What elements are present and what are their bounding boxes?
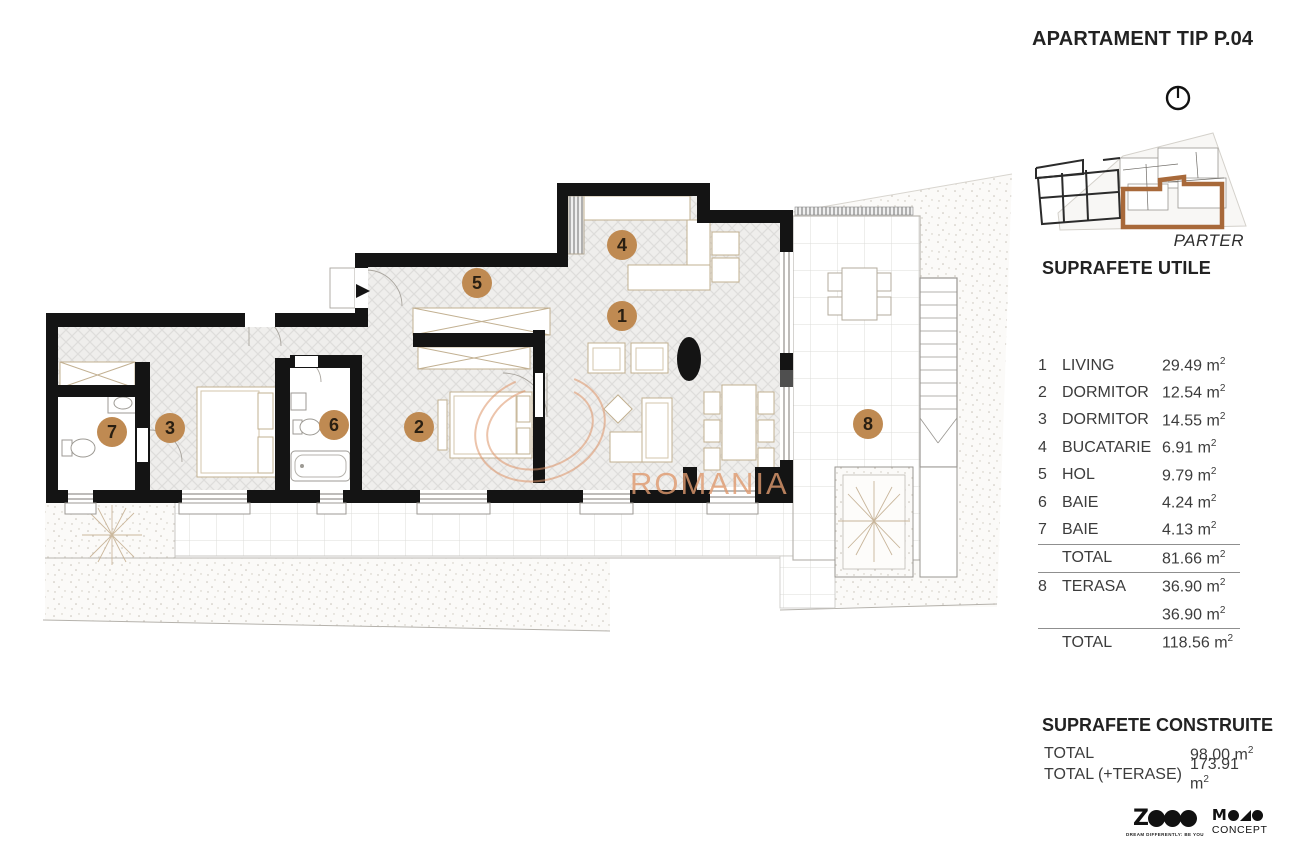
area-row: 8TERASA36.90 m2 [1038,573,1240,600]
page-title: APARTAMENT TIP P.04 [1032,28,1253,51]
room-area: 36.90 m2 [1162,577,1240,596]
footer-logos: Z DREAM DIFFERENTLY: BE YOU M CONCEPT [1126,806,1266,837]
room-area: 118.56 m2 [1162,633,1240,652]
floorplan-drawing: 12345678 ROMANIA [0,0,1020,866]
room-area: 9.79 m2 [1162,466,1240,485]
room-number: 7 [1038,521,1062,539]
mono-triangle-glyph [1240,810,1251,821]
room-area: 4.13 m2 [1162,520,1240,539]
room-number: 8 [1038,578,1062,596]
zece-tagline: DREAM DIFFERENTLY: BE YOU [1126,832,1204,837]
room-marker-3: 3 [155,413,185,443]
built-label: TOTAL [1044,745,1190,763]
room-label: TOTAL [1062,634,1162,652]
room-marker-8: 8 [853,409,883,439]
floorplan-page: { "header": { "title": "APARTAMENT TIP P… [0,0,1291,866]
room-label: BAIE [1062,494,1162,512]
mono-m-glyph: M [1212,806,1227,824]
zece-logo: Z DREAM DIFFERENTLY: BE YOU [1126,806,1204,837]
room-area: 6.91 m2 [1162,438,1240,457]
keyplan-diagram [1028,118,1252,240]
area-row: 2DORMITOR12.54 m2 [1038,379,1240,406]
room-label: DORMITOR [1062,384,1162,402]
room-number: 6 [1038,494,1062,512]
room-number: 2 [1038,384,1062,402]
room-marker-4: 4 [607,230,637,260]
areas-table: 1LIVING29.49 m22DORMITOR12.54 m23DORMITO… [1038,352,1240,656]
room-label: BAIE [1062,521,1162,539]
room-area: 36.90 m2 [1162,605,1240,624]
room-number: 3 [1038,411,1062,429]
area-row: TOTAL81.66 m2 [1038,544,1240,573]
zece-disc [1164,810,1181,827]
north-arrow-icon [1163,82,1193,112]
mono-concept-logo: M CONCEPT [1212,806,1268,836]
zece-disc [1180,810,1197,827]
built-area: 173.91 m2 [1190,756,1256,793]
room-label: BUCATARIE [1062,439,1162,457]
room-marker-7: 7 [97,417,127,447]
room-label: TOTAL [1062,549,1162,567]
room-marker-6: 6 [319,410,349,440]
area-row: 1LIVING29.49 m2 [1038,352,1240,379]
living-oval-furniture [677,337,701,381]
stairs [920,278,957,577]
room-number: 1 [1038,357,1062,375]
area-row: 36.90 m2 [1038,601,1240,628]
area-row: 6BAIE4.24 m2 [1038,489,1240,516]
room-area: 12.54 m2 [1162,383,1240,402]
watermark-text: ROMANIA [630,466,789,502]
terrace-planter [835,467,913,577]
built-area-row: TOTAL (+TERASE)173.91 m2 [1044,765,1256,786]
area-row: 7BAIE4.13 m2 [1038,516,1240,543]
section-heading-utile: SUPRAFETE UTILE [1042,258,1211,279]
room-label: HOL [1062,466,1162,484]
room-area: 14.55 m2 [1162,411,1240,430]
room-label: TERASA [1062,578,1162,596]
area-row: 3DORMITOR14.55 m2 [1038,407,1240,434]
area-row: TOTAL118.56 m2 [1038,628,1240,656]
room-area: 81.66 m2 [1162,549,1240,568]
zece-z-glyph: Z [1133,806,1149,831]
built-areas-table: TOTAL98.00 m2TOTAL (+TERASE)173.91 m2 [1044,744,1256,785]
built-label: TOTAL (+TERASE) [1044,766,1190,784]
zece-disc [1148,810,1165,827]
room-marker-5: 5 [462,268,492,298]
mono-circle-glyph [1228,810,1239,821]
mono-concept-label: CONCEPT [1212,824,1268,836]
area-row: 5HOL9.79 m2 [1038,462,1240,489]
room-marker-2: 2 [404,412,434,442]
area-row: 4BUCATARIE6.91 m2 [1038,434,1240,461]
room-label: LIVING [1062,357,1162,375]
room-number: 4 [1038,439,1062,457]
room-number: 5 [1038,466,1062,484]
room-area: 4.24 m2 [1162,493,1240,512]
floor-label: PARTER [1120,231,1244,251]
section-heading-construite: SUPRAFETE CONSTRUITE [1042,715,1273,736]
room-area: 29.49 m2 [1162,356,1240,375]
room-marker-1: 1 [607,301,637,331]
room-label: DORMITOR [1062,411,1162,429]
mono-circle-glyph [1252,810,1263,821]
